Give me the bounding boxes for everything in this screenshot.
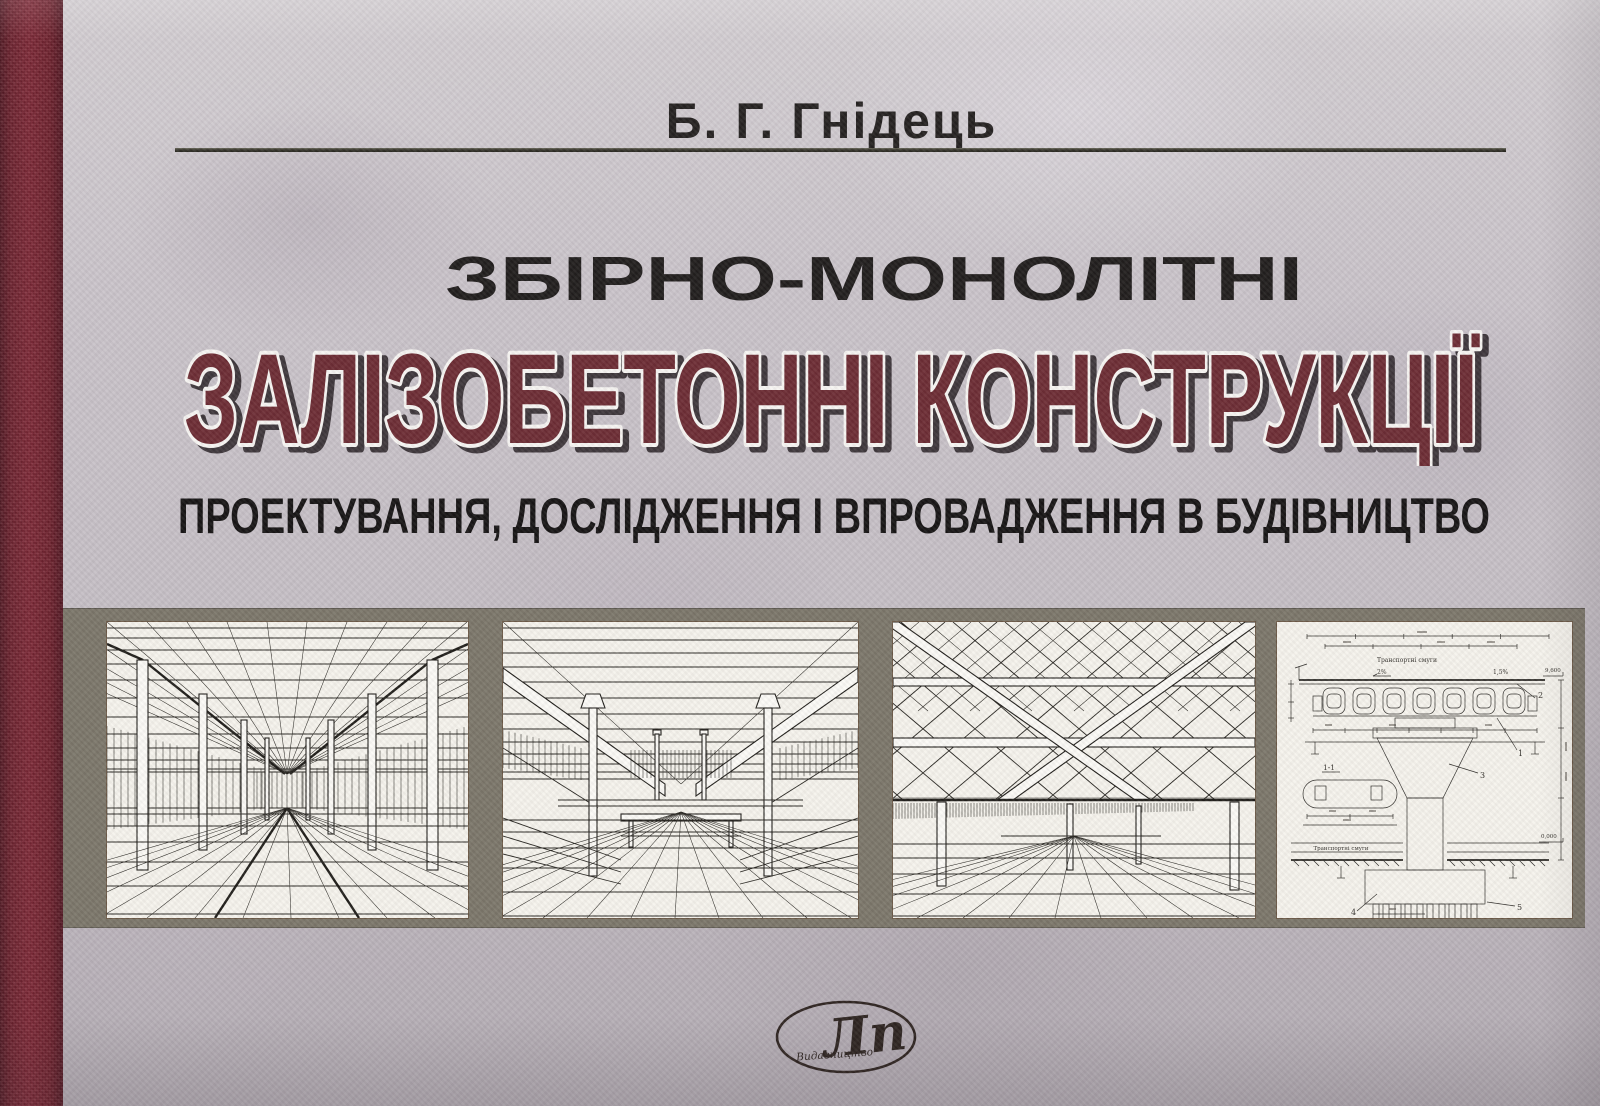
lane-label-bottom: Транспортні смуги: [1313, 846, 1368, 852]
panel-bridge-pier-section: Транспортні смуги 2% 1,5% 2 1 3: [1277, 622, 1572, 918]
elevation-top: 9,600: [1545, 668, 1561, 674]
lane-label-top: Транспортні смуги: [1377, 657, 1437, 664]
part-2-label: 2: [1538, 691, 1543, 700]
title-main-svg: ЗАЛІЗОБЕТОННІ КОНСТРУКЦІЇ ЗАЛІЗОБЕТОННІ …: [0, 330, 1600, 466]
columns: [937, 802, 1239, 890]
section-1-1-label: 1-1: [1323, 763, 1335, 772]
horizontal-rule: [175, 148, 1506, 152]
book-spine: [0, 0, 63, 1106]
book-cover: Б. Г. Гнідець ЗБІРНО-МОНОЛІТНІ ЗАЛІЗОБЕТ…: [0, 0, 1600, 1106]
part-4-label: 4: [1351, 908, 1356, 917]
part-1-label: 1: [1518, 749, 1523, 758]
panel-flat-slab-interior: [503, 622, 858, 918]
panel-ribbed-roof-hall: [107, 622, 468, 918]
subtitle-svg: ПРОЕКТУВАННЯ, ДОСЛІДЖЕННЯ І ВПРОВАДЖЕННЯ…: [0, 488, 1600, 544]
subtitle: ПРОЕКТУВАННЯ, ДОСЛІДЖЕННЯ І ВПРОВАДЖЕННЯ…: [178, 488, 1490, 544]
part-3-label: 3: [1480, 771, 1485, 780]
title-line1-svg: ЗБІРНО-МОНОЛІТНІ: [0, 242, 1600, 314]
cover-background: [63, 0, 1600, 1106]
mushroom-columns: [581, 694, 780, 876]
panel-space-lattice-roof: [893, 622, 1255, 918]
slope-right-label: 1,5%: [1493, 669, 1509, 676]
slope-left-label: 2%: [1377, 669, 1387, 676]
part-5-label: 5: [1517, 903, 1522, 912]
publisher-logo: Лп Видавництво: [765, 995, 927, 1081]
author-name: Б. Г. Гнідець: [63, 92, 1600, 150]
title-main: ЗАЛІЗОБЕТОННІ КОНСТРУКЦІЇ: [184, 330, 1480, 466]
elevation-bottom: 0,000: [1541, 834, 1557, 840]
title-line1: ЗБІРНО-МОНОЛІТНІ: [445, 245, 1303, 314]
roof-girders: [107, 644, 468, 774]
side-benches: [503, 818, 858, 884]
